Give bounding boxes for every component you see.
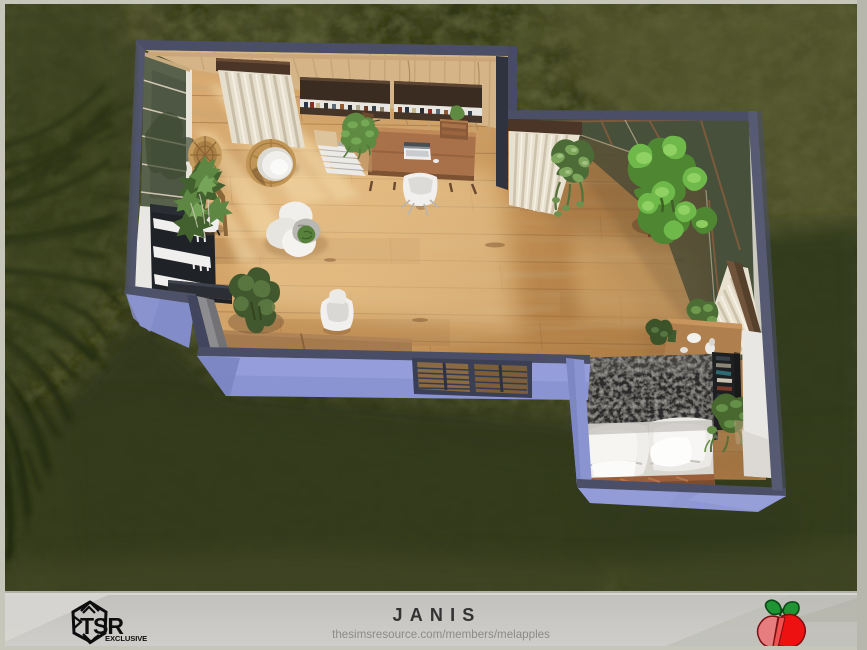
svg-text:JANIS: JANIS <box>392 605 481 625</box>
svg-text:EXCLUSIVE: EXCLUSIVE <box>105 634 147 643</box>
svg-text:thesimsresource.com/members/me: thesimsresource.com/members/melapples <box>332 628 550 641</box>
